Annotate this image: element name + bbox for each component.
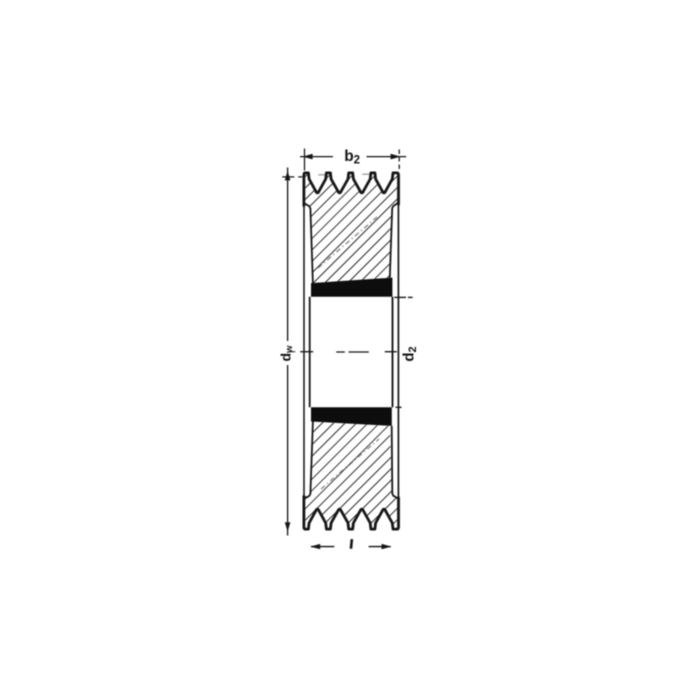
svg-text:dw: dw <box>278 345 295 362</box>
svg-text:b2: b2 <box>344 148 360 167</box>
svg-text:d2: d2 <box>400 346 418 361</box>
